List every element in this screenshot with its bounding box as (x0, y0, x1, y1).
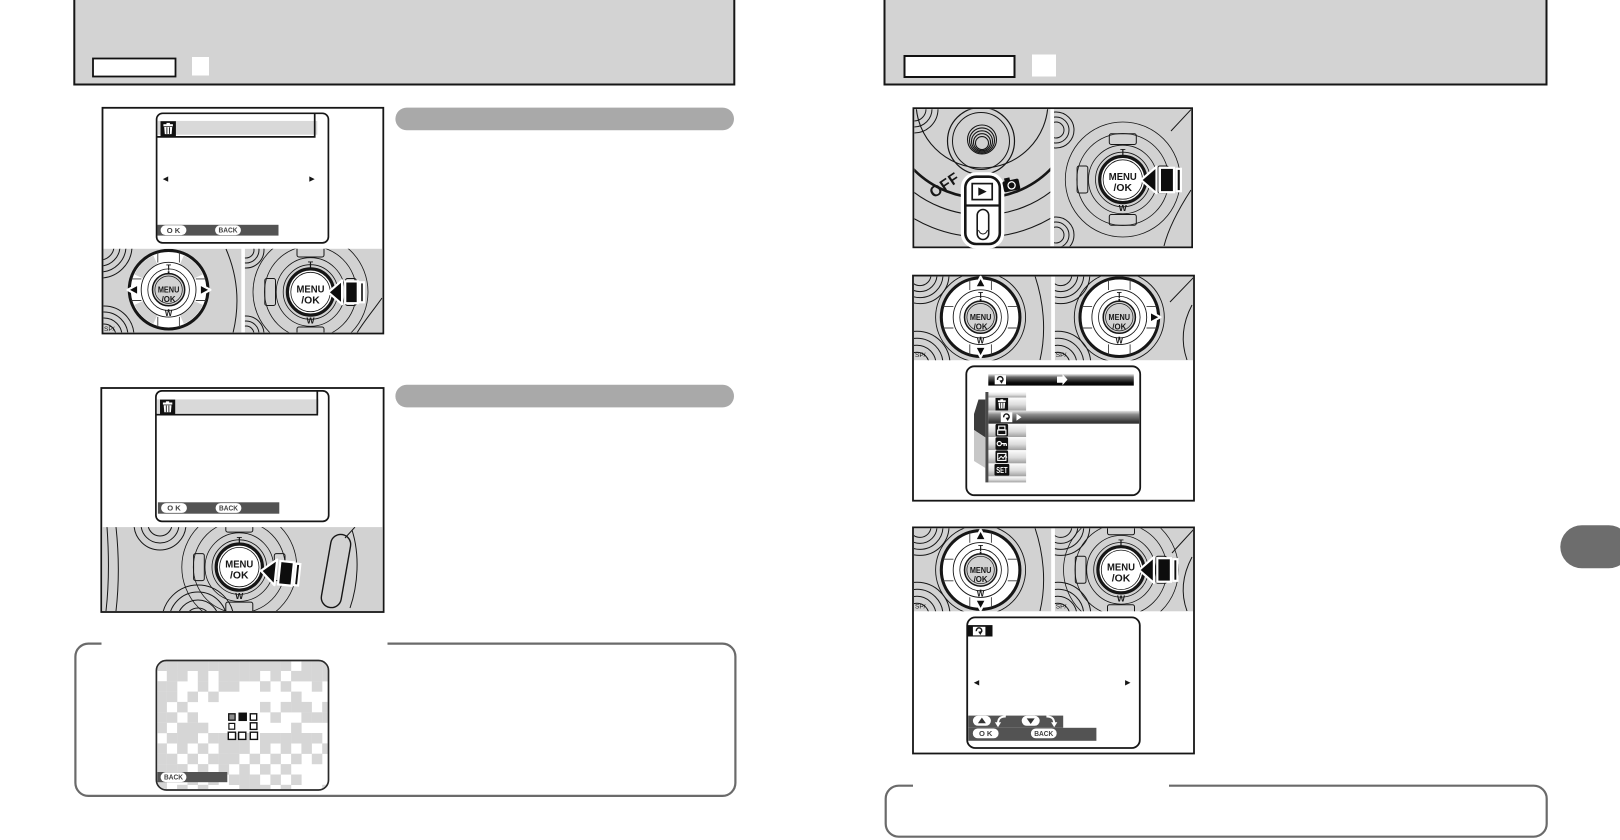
svg-text:/OK: /OK (974, 575, 988, 584)
svg-text:W: W (977, 337, 985, 346)
svg-text:SP/: SP/ (915, 352, 926, 359)
svg-text:W: W (235, 591, 244, 601)
svg-text:/OK: /OK (1114, 183, 1133, 194)
svg-text:BACK: BACK (164, 773, 184, 782)
svg-text:/OK: /OK (1112, 322, 1126, 331)
svg-text:OK: OK (167, 226, 182, 235)
svg-text:MENU: MENU (158, 286, 180, 295)
svg-text:MENU: MENU (970, 313, 992, 322)
svg-text:SP/: SP/ (915, 603, 926, 610)
svg-text:MENU: MENU (1109, 313, 1131, 322)
svg-text:/OK: /OK (1112, 573, 1131, 584)
svg-text:SP/: SP/ (1056, 603, 1067, 610)
svg-text:W: W (977, 590, 985, 599)
svg-text:BACK: BACK (1034, 729, 1054, 738)
svg-text:/OK: /OK (301, 296, 320, 307)
svg-text:SP/: SP/ (1056, 352, 1067, 359)
svg-text:OK: OK (979, 729, 994, 738)
svg-text:MENU: MENU (297, 285, 325, 296)
svg-text:OK: OK (167, 504, 182, 513)
svg-text:/OK: /OK (230, 571, 249, 582)
svg-text:MENU: MENU (970, 566, 992, 575)
svg-text:W: W (1117, 594, 1126, 604)
svg-text:W: W (165, 309, 173, 318)
svg-text:W: W (306, 316, 315, 326)
svg-text:MENU: MENU (1107, 562, 1135, 573)
svg-text:/OK: /OK (974, 322, 988, 331)
svg-text:SET: SET (996, 466, 1007, 475)
svg-text:BACK: BACK (219, 504, 239, 513)
svg-text:W: W (1119, 203, 1128, 213)
svg-text:MENU: MENU (225, 560, 253, 571)
svg-text:/OK: /OK (162, 295, 176, 304)
svg-text:W: W (1116, 337, 1124, 346)
svg-text:BACK: BACK (219, 226, 239, 235)
svg-text:MENU: MENU (1109, 172, 1137, 183)
svg-text:SP/: SP/ (104, 326, 115, 333)
